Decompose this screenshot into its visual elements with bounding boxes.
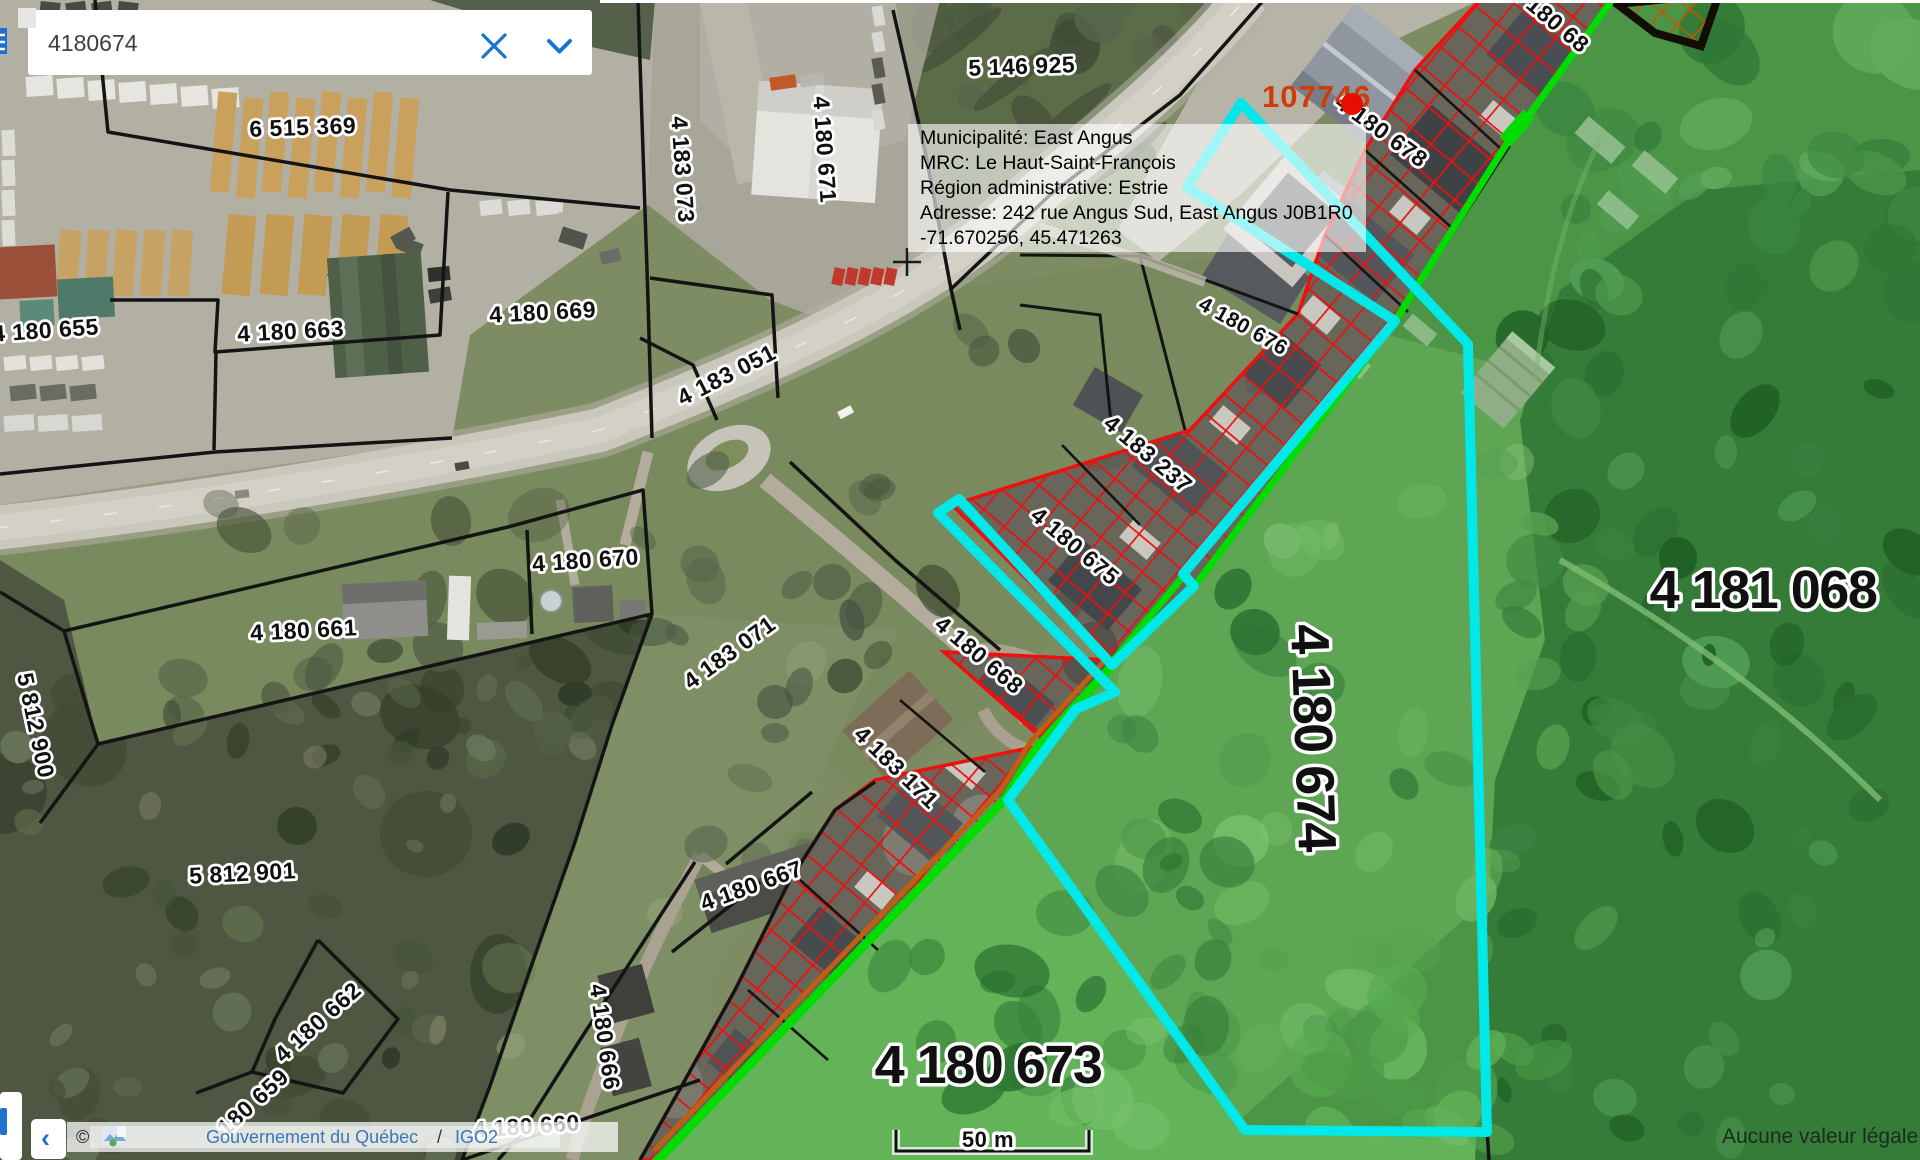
svg-text:/: / (437, 1127, 442, 1147)
svg-text:4 181 068: 4 181 068 (1650, 560, 1877, 620)
svg-text:Aucune valeur légale: Aucune valeur légale (1722, 1125, 1918, 1148)
svg-text:MRC: Le Haut-Saint-François: MRC: Le Haut-Saint-François (920, 152, 1176, 174)
svg-text:50 m: 50 m (962, 1127, 1014, 1152)
svg-text:4180674: 4180674 (48, 30, 138, 56)
svg-text:©: © (76, 1127, 89, 1147)
svg-text:‹: ‹ (41, 1123, 50, 1153)
svg-text:4 180 674: 4 180 674 (1279, 623, 1347, 853)
svg-text:Région administrative: Estrie: Région administrative: Estrie (920, 177, 1168, 199)
svg-text:Municipalité: East Angus: Municipalité: East Angus (920, 127, 1133, 149)
svg-text:-71.670256, 45.471263: -71.670256, 45.471263 (920, 227, 1122, 249)
svg-text:6 515 369: 6 515 369 (249, 112, 357, 142)
svg-text:IGO2: IGO2 (455, 1127, 498, 1147)
svg-text:Adresse: 242 rue Angus Sud, Ea: Adresse: 242 rue Angus Sud, East Angus J… (920, 202, 1353, 224)
svg-text:5 146 925: 5 146 925 (968, 51, 1076, 81)
svg-text:4 180 673: 4 180 673 (875, 1035, 1102, 1095)
svg-text:Gouvernement du Québec: Gouvernement du Québec (206, 1127, 418, 1147)
